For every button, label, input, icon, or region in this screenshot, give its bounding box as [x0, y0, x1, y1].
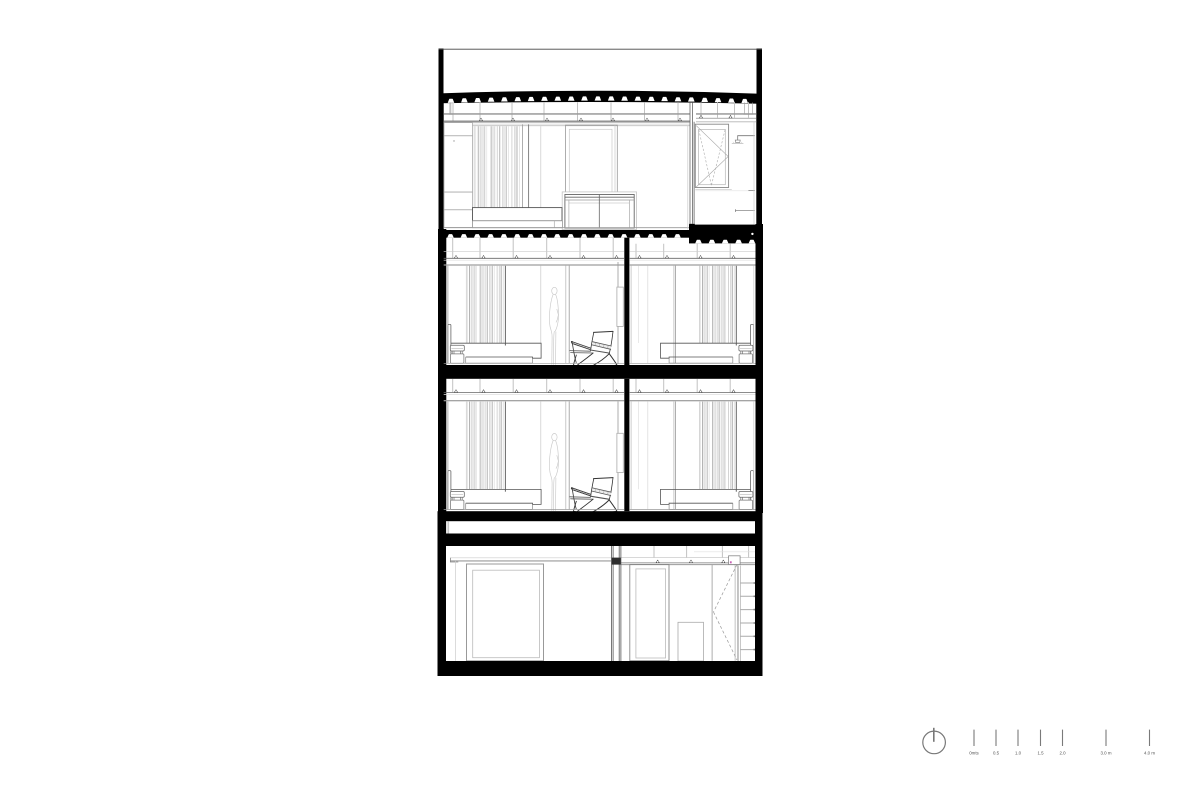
svg-text:2.0: 2.0	[1059, 750, 1066, 755]
svg-text:3.0 m: 3.0 m	[1101, 750, 1112, 755]
svg-text:0.5: 0.5	[993, 750, 1000, 755]
svg-text:1.5: 1.5	[1037, 750, 1044, 755]
svg-text:4.0 m: 4.0 m	[1144, 750, 1155, 755]
svg-text:0mts: 0mts	[969, 750, 979, 755]
svg-text:1.0: 1.0	[1015, 750, 1022, 755]
